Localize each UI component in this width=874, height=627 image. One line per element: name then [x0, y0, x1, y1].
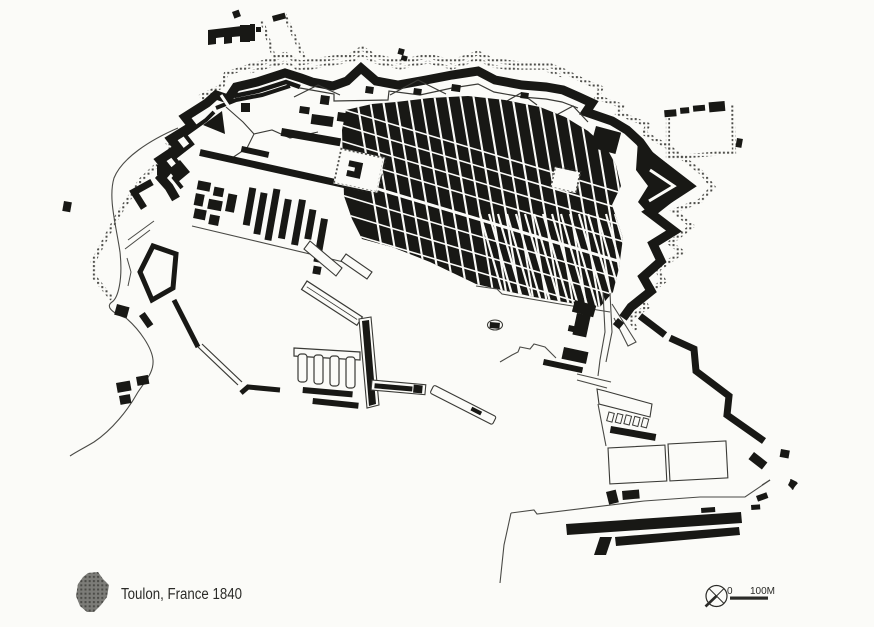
svg-text:100M: 100M	[750, 586, 775, 597]
svg-text:Toulon, France 1840: Toulon, France 1840	[121, 586, 242, 603]
svg-text:0: 0	[727, 586, 733, 597]
